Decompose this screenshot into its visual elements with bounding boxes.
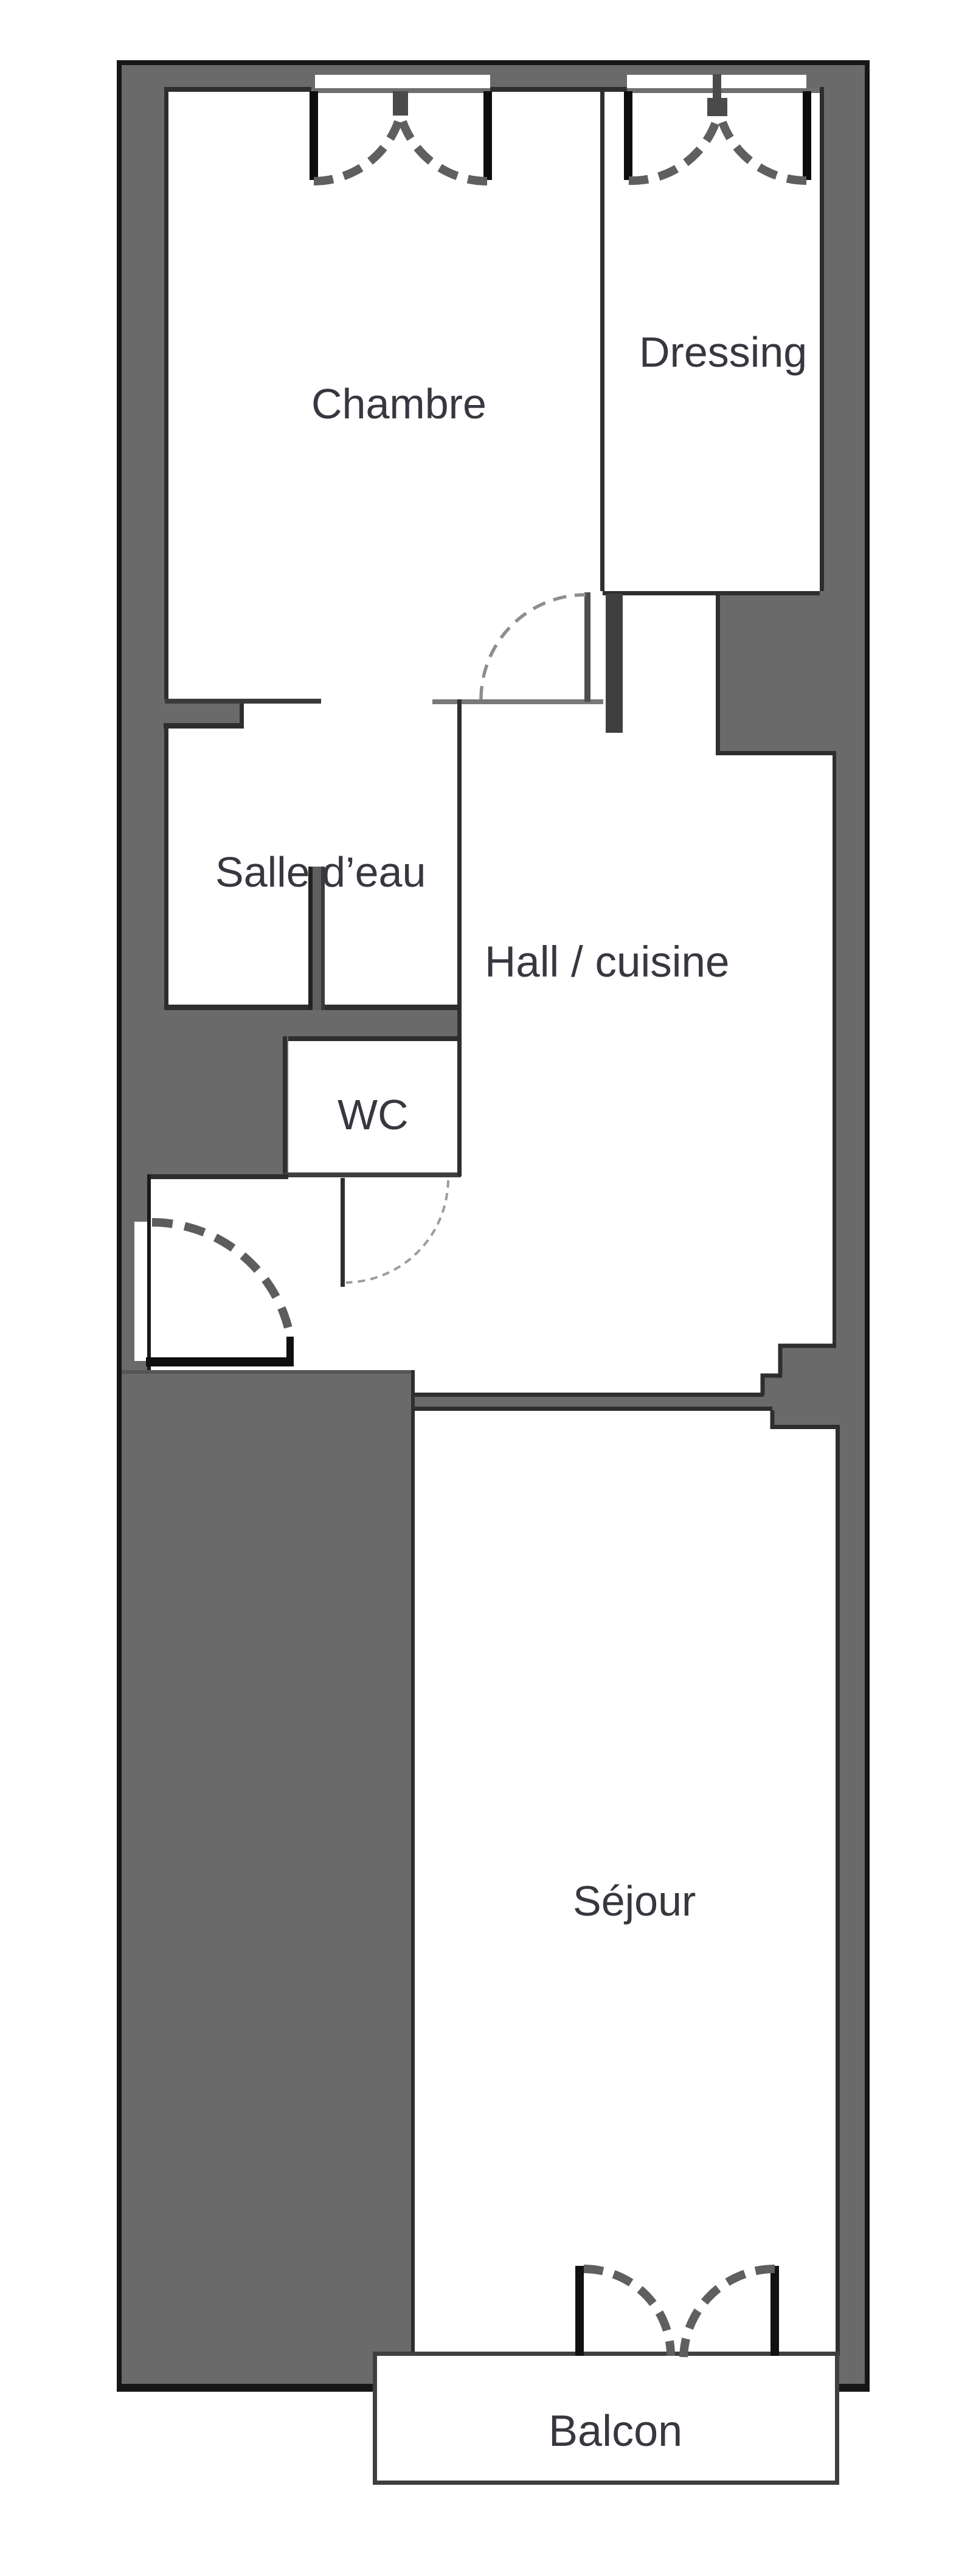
svg-text:Séjour: Séjour <box>573 1877 696 1925</box>
svg-text:Balcon: Balcon <box>549 2407 682 2456</box>
svg-text:Hall / cuisine: Hall / cuisine <box>485 938 730 986</box>
svg-text:Chambre: Chambre <box>311 380 486 428</box>
svg-text:Salle d’eau: Salle d’eau <box>215 848 426 896</box>
svg-text:Dressing: Dressing <box>639 328 807 376</box>
svg-text:WC: WC <box>338 1091 409 1138</box>
